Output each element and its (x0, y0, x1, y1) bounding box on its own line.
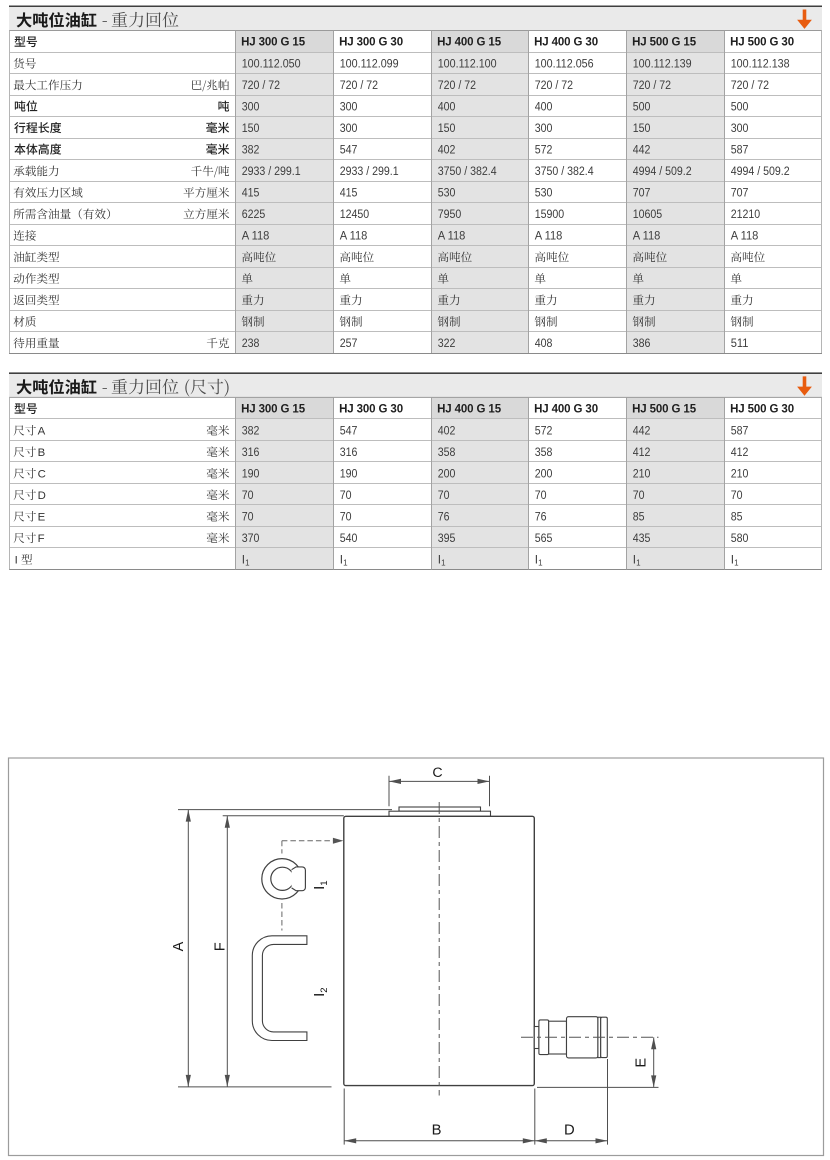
svg-text:540: 540 (340, 531, 358, 545)
svg-text:386: 386 (633, 336, 651, 350)
svg-text:12450: 12450 (340, 207, 370, 221)
svg-text:76: 76 (438, 510, 450, 524)
svg-text:400: 400 (535, 100, 553, 114)
svg-text:70: 70 (633, 488, 645, 502)
svg-text:4994 / 509.2: 4994 / 509.2 (633, 164, 692, 178)
svg-text:402: 402 (438, 424, 456, 438)
svg-text:B: B (38, 447, 46, 459)
svg-text:200: 200 (535, 467, 553, 481)
svg-text:A 118: A 118 (340, 229, 368, 243)
svg-text:HJ 400 G 30: HJ 400 G 30 (534, 37, 598, 49)
svg-text:210: 210 (731, 467, 749, 481)
svg-text:720 / 72: 720 / 72 (242, 78, 280, 92)
svg-text:HJ 500 G 30: HJ 500 G 30 (730, 37, 794, 49)
svg-text:530: 530 (535, 186, 553, 200)
svg-text:300: 300 (340, 121, 358, 135)
svg-text:A 118: A 118 (535, 229, 563, 243)
svg-text:322: 322 (438, 336, 456, 350)
svg-text:85: 85 (731, 510, 743, 524)
svg-text:565: 565 (535, 531, 553, 545)
svg-text:3750 / 382.4: 3750 / 382.4 (535, 164, 594, 178)
svg-text:HJ 400 G 30: HJ 400 G 30 (534, 404, 598, 416)
svg-text:15900: 15900 (535, 207, 565, 221)
svg-text:HJ 400 G 15: HJ 400 G 15 (437, 404, 502, 416)
svg-text:442: 442 (633, 143, 651, 157)
svg-text:A: A (38, 426, 46, 438)
svg-text:76: 76 (535, 510, 547, 524)
svg-text:70: 70 (438, 488, 450, 502)
svg-text:4994 / 509.2: 4994 / 509.2 (731, 164, 790, 178)
svg-text:316: 316 (242, 445, 260, 459)
svg-text:547: 547 (340, 143, 358, 157)
svg-text:F: F (212, 942, 228, 951)
svg-text:2933 / 299.1: 2933 / 299.1 (242, 164, 301, 178)
svg-text:707: 707 (633, 186, 651, 200)
svg-text:300: 300 (535, 121, 553, 135)
svg-text:A: A (171, 941, 187, 951)
svg-text:100.112.100: 100.112.100 (438, 57, 497, 71)
svg-text:100.112.139: 100.112.139 (633, 57, 692, 71)
svg-text:HJ 500 G 15: HJ 500 G 15 (632, 37, 697, 49)
svg-text:300: 300 (731, 121, 749, 135)
svg-text:D: D (38, 490, 46, 502)
svg-text:A 118: A 118 (731, 229, 759, 243)
svg-text:358: 358 (535, 445, 553, 459)
svg-text:210: 210 (633, 467, 651, 481)
svg-text:238: 238 (242, 336, 260, 350)
svg-text:408: 408 (535, 336, 553, 350)
svg-text:442: 442 (633, 424, 651, 438)
svg-text:415: 415 (340, 186, 358, 200)
svg-text:300: 300 (242, 100, 260, 114)
svg-text:F: F (38, 533, 45, 545)
svg-text:100.112.138: 100.112.138 (731, 57, 790, 71)
svg-text:720 / 72: 720 / 72 (731, 78, 769, 92)
svg-text:382: 382 (242, 143, 260, 157)
svg-text:547: 547 (340, 424, 358, 438)
svg-text:358: 358 (438, 445, 456, 459)
svg-text:A 118: A 118 (242, 229, 270, 243)
svg-text:257: 257 (340, 336, 358, 350)
svg-text:587: 587 (731, 424, 749, 438)
svg-text:435: 435 (633, 531, 651, 545)
svg-text:B: B (432, 1123, 442, 1139)
svg-text:572: 572 (535, 143, 553, 157)
svg-text:100.112.050: 100.112.050 (242, 57, 301, 71)
svg-text:70: 70 (242, 510, 254, 524)
svg-text:A 118: A 118 (438, 229, 466, 243)
svg-text:707: 707 (731, 186, 749, 200)
svg-text:500: 500 (633, 100, 651, 114)
svg-text:580: 580 (731, 531, 749, 545)
svg-text:HJ 300 G 15: HJ 300 G 15 (241, 404, 306, 416)
svg-text:70: 70 (731, 488, 743, 502)
svg-text:402: 402 (438, 143, 456, 157)
svg-text:85: 85 (633, 510, 645, 524)
svg-text:70: 70 (340, 510, 352, 524)
svg-text:C: C (38, 469, 46, 481)
svg-text:70: 70 (242, 488, 254, 502)
svg-text:720 / 72: 720 / 72 (438, 78, 476, 92)
svg-text:C: C (432, 765, 442, 781)
svg-text:395: 395 (438, 531, 456, 545)
svg-text:150: 150 (633, 121, 651, 135)
svg-text:7950: 7950 (438, 207, 462, 221)
svg-text:3750 / 382.4: 3750 / 382.4 (438, 164, 497, 178)
svg-text:415: 415 (242, 186, 260, 200)
svg-text:6225: 6225 (242, 207, 266, 221)
svg-text:587: 587 (731, 143, 749, 157)
svg-text:530: 530 (438, 186, 456, 200)
svg-text:21210: 21210 (731, 207, 761, 221)
svg-text:316: 316 (340, 445, 358, 459)
svg-text:HJ 300 G 30: HJ 300 G 30 (339, 404, 403, 416)
svg-text:500: 500 (731, 100, 749, 114)
svg-text:D: D (564, 1123, 575, 1139)
svg-text:400: 400 (438, 100, 456, 114)
svg-text:150: 150 (242, 121, 260, 135)
svg-text:HJ 300 G 30: HJ 300 G 30 (339, 37, 403, 49)
svg-text:70: 70 (535, 488, 547, 502)
svg-text:720 / 72: 720 / 72 (340, 78, 378, 92)
svg-text:100.112.056: 100.112.056 (535, 57, 594, 71)
svg-text:HJ 500 G 15: HJ 500 G 15 (632, 404, 697, 416)
svg-text:412: 412 (633, 445, 651, 459)
svg-text:412: 412 (731, 445, 749, 459)
svg-text:I: I (15, 555, 18, 567)
svg-text:190: 190 (242, 467, 260, 481)
svg-text:511: 511 (731, 336, 749, 350)
svg-text:720 / 72: 720 / 72 (535, 78, 573, 92)
svg-text:100.112.099: 100.112.099 (340, 57, 399, 71)
svg-text:HJ 500 G 30: HJ 500 G 30 (730, 404, 794, 416)
svg-text:HJ 300 G 15: HJ 300 G 15 (241, 37, 306, 49)
svg-text:382: 382 (242, 424, 260, 438)
svg-text:572: 572 (535, 424, 553, 438)
svg-text:150: 150 (438, 121, 456, 135)
svg-text:A 118: A 118 (633, 229, 661, 243)
svg-text:70: 70 (340, 488, 352, 502)
svg-text:HJ 400 G 15: HJ 400 G 15 (437, 37, 502, 49)
svg-text:200: 200 (438, 467, 456, 481)
svg-text:E: E (38, 512, 46, 524)
svg-text:2933 / 299.1: 2933 / 299.1 (340, 164, 399, 178)
svg-text:370: 370 (242, 531, 260, 545)
svg-text:300: 300 (340, 100, 358, 114)
svg-text:10605: 10605 (633, 207, 663, 221)
svg-text:E: E (633, 1057, 649, 1067)
svg-text:190: 190 (340, 467, 358, 481)
svg-text:720 / 72: 720 / 72 (633, 78, 671, 92)
